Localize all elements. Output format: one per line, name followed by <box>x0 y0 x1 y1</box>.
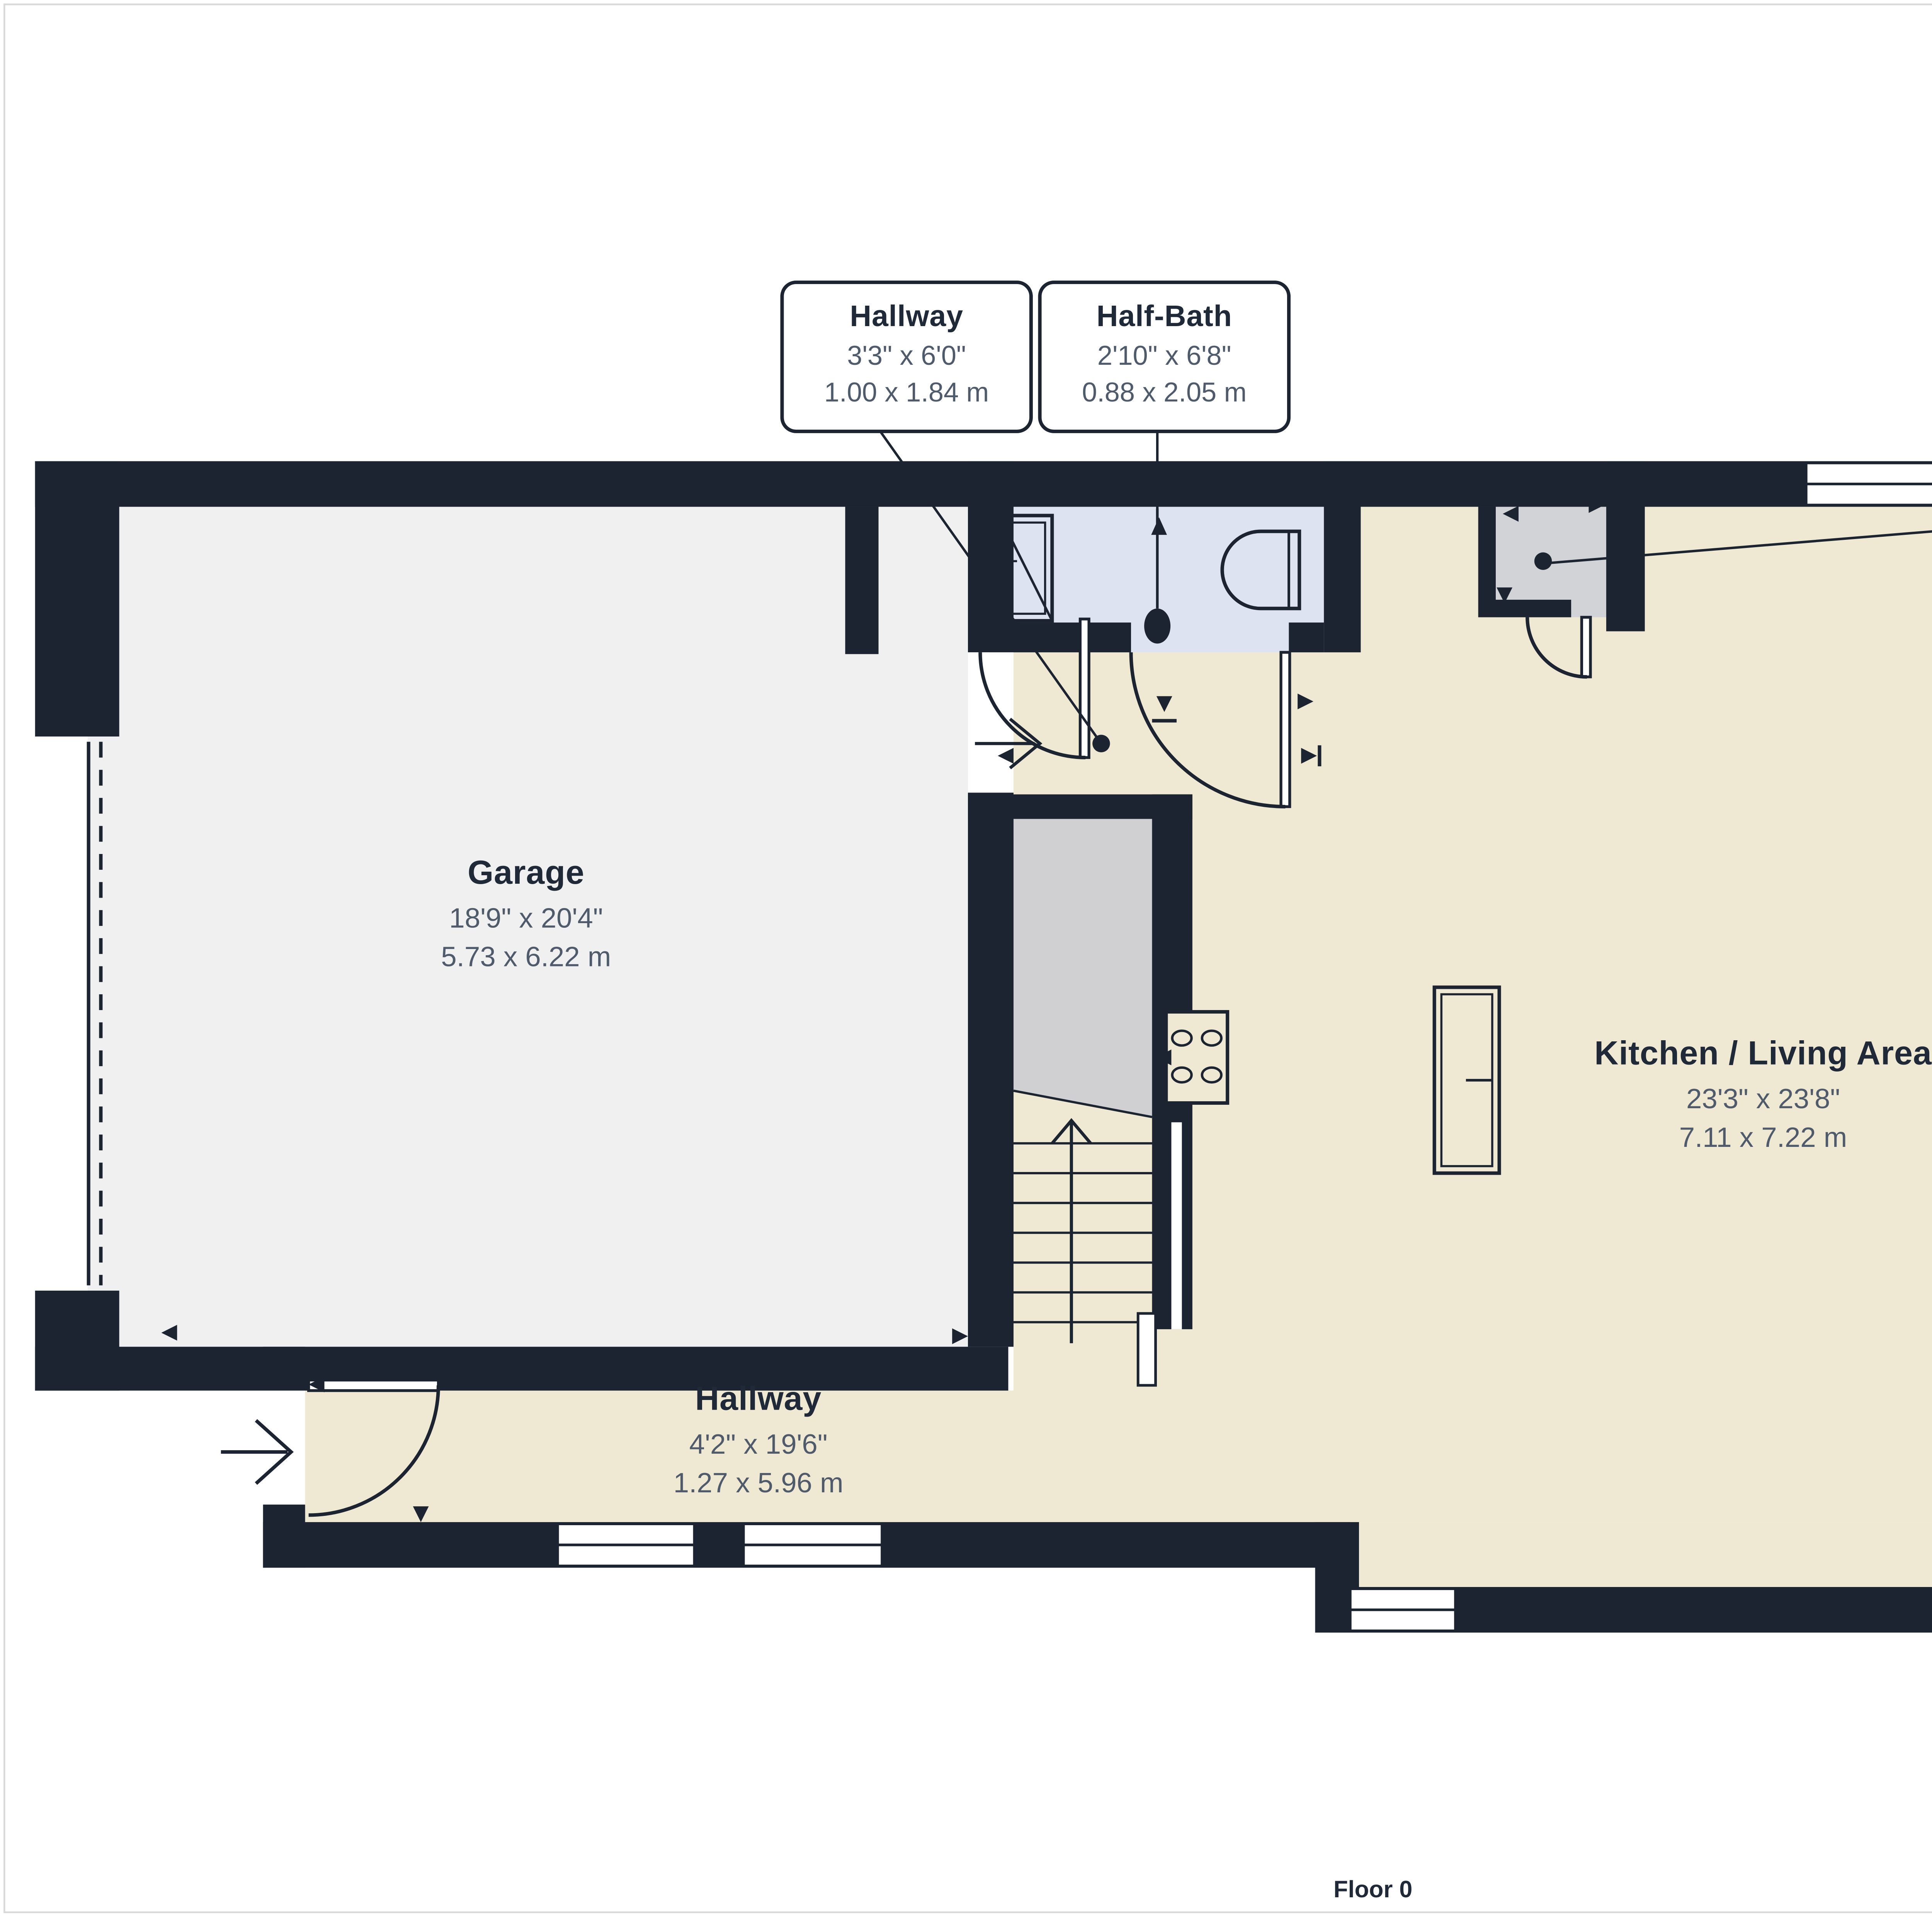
entry-light-icon <box>1092 735 1110 752</box>
bath-door-leaf <box>1281 652 1290 806</box>
wall-garage-stub <box>845 507 878 654</box>
stair-landing <box>1014 819 1152 1117</box>
floor-title: Floor 0 <box>1215 1876 1531 1903</box>
kitchen-floor-lower <box>1350 1522 1932 1587</box>
hallway-entry-callout: Hallway 3'3" x 6'0" 1.00 x 1.84 m <box>780 281 1032 433</box>
callout-dims-imperial: 3'3" x 6'0" <box>784 338 1029 376</box>
wall-closet-bottom <box>1496 600 1571 617</box>
wall-garage-bottom <box>35 1347 1009 1390</box>
garage-floor <box>88 507 968 1347</box>
closet-door-leaf <box>1582 617 1590 677</box>
callout-dims-imperial: 2'10" x 6'8" <box>1042 338 1287 376</box>
callout-title: Hallway <box>784 300 1029 335</box>
floor-plan: Garage 18'9" x 20'4" 5.73 x 6.22 m Kitch… <box>0 0 1932 1917</box>
wall-left-top-block <box>35 461 119 737</box>
hallway-floor <box>305 1391 1014 1522</box>
wall-hall-left-upper <box>263 1347 305 1385</box>
wall-closet-left <box>1478 507 1496 617</box>
entry-door-leaf <box>1080 619 1089 758</box>
wall-garage-right-lower <box>968 793 1014 1347</box>
half-bath-callout: Half-Bath 2'10" x 6'8" 0.88 x 2.05 m <box>1038 281 1291 433</box>
exterior-mask <box>228 1568 1329 1633</box>
front-door-leaf <box>309 1380 439 1390</box>
cooktop-icon <box>1166 1012 1228 1103</box>
bath-light-icon <box>1144 609 1170 644</box>
wall-bath-bottom-left <box>989 623 1131 652</box>
callout-title: Half-Bath <box>1042 300 1287 335</box>
wall-bath-right <box>1324 461 1361 653</box>
closet-light-icon <box>1534 553 1552 570</box>
stair-handrail <box>1171 1122 1182 1329</box>
wall-closet-right <box>1606 461 1645 631</box>
callout-dims-metric: 1.00 x 1.84 m <box>784 376 1029 413</box>
callout-dims-metric: 0.88 x 2.05 m <box>1042 376 1287 413</box>
stair-newel-post <box>1138 1313 1155 1385</box>
wall-bath-bottom-right <box>1289 623 1324 652</box>
screenshot-canvas: Garage 18'9" x 20'4" 5.73 x 6.22 m Kitch… <box>0 0 1932 1917</box>
